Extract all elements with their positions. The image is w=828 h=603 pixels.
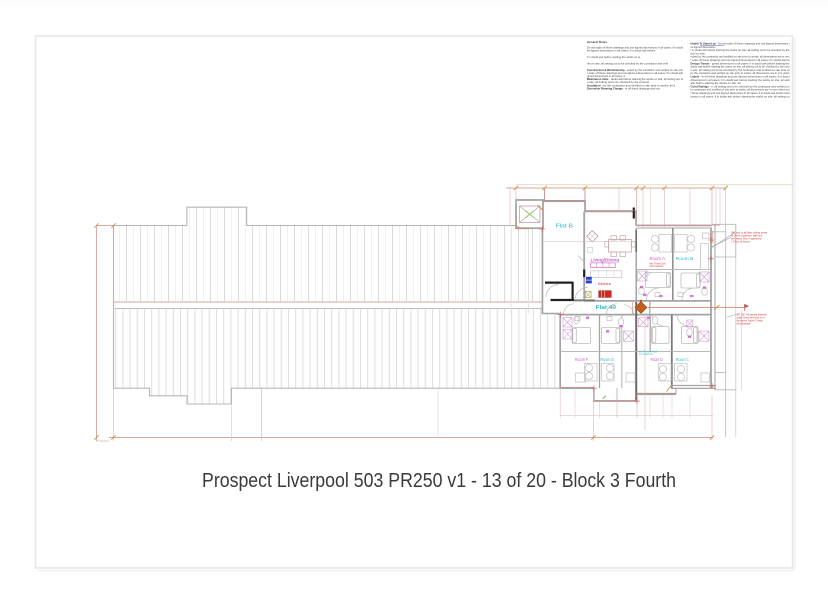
svg-text:nsions in all cases; if in dou: nsions in all cases; if in doubt ask bef…: [691, 95, 791, 98]
svg-text:rks on site; all setting out t: rks on site; all setting out to be check…: [587, 63, 668, 66]
svg-text:Room D: Room D: [651, 357, 663, 362]
svg-text:Room A: Room A: [650, 256, 666, 261]
svg-text:Room C: Room C: [676, 357, 689, 362]
svg-text:General Notes: General Notes: [587, 40, 607, 44]
svg-text:1 Floor; all blocks;: 1 Floor; all blocks;: [731, 239, 750, 243]
svg-text:to corridor line: to corridor line: [639, 353, 654, 356]
svg-text:from bedroom: from bedroom: [650, 265, 664, 268]
svg-text:Room E: Room E: [601, 357, 615, 362]
svg-text:Kitchen: Kitchen: [598, 281, 611, 286]
svg-text:fire balustrade: fire balustrade: [737, 322, 751, 326]
svg-text:Discretion Planning Change - l: Discretion Planning Change - le off thes…: [587, 88, 661, 91]
svg-text:Flat 40: Flat 40: [596, 305, 617, 311]
svg-text:Room B: Room B: [676, 256, 694, 261]
svg-text:Prospect Liverpool 503 PR250 v: Prospect Liverpool 503 PR250 v1 - 13 of …: [202, 469, 676, 492]
svg-text:f in doubt ask before starting: f in doubt ask before starting the works…: [587, 56, 640, 59]
svg-text:Living/Dining: Living/Dining: [591, 258, 620, 263]
svg-text:Flat B: Flat B: [556, 224, 574, 230]
svg-text:Room F: Room F: [575, 357, 588, 362]
svg-text:se figured dimensions in all c: se figured dimensions in all cases; if i…: [587, 50, 656, 53]
